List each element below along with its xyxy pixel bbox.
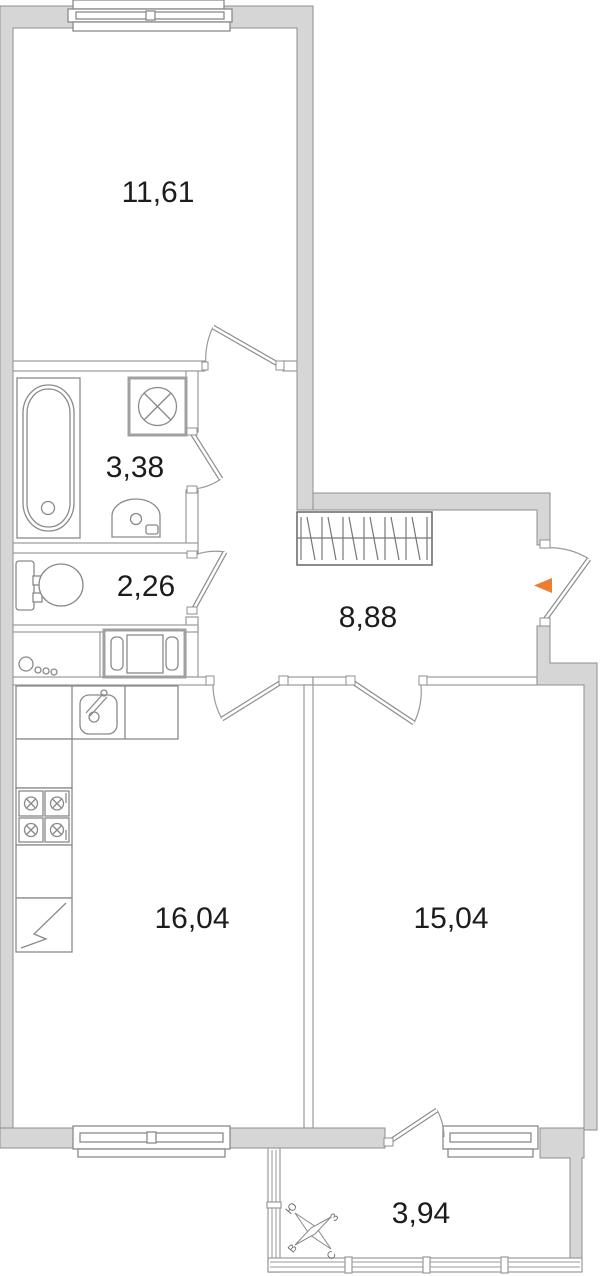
balcony-door xyxy=(384,1110,444,1146)
wall-bathroom-bottom xyxy=(13,543,198,553)
utility-appliance xyxy=(104,630,185,677)
compass-west-label: З xyxy=(328,1211,342,1224)
balcony-glazing-mullion-1 xyxy=(345,1257,352,1273)
room-label-bathroom: 3,38 xyxy=(106,451,164,484)
outer-walls xyxy=(0,6,597,1272)
wall-entrance-lower-right xyxy=(537,626,597,1130)
bathtub xyxy=(17,378,80,538)
room-label-toilet: 2,26 xyxy=(117,570,175,603)
water-heater xyxy=(19,657,57,675)
balcony-glazing-left xyxy=(268,1148,280,1272)
balcony-glazing-mullion-2 xyxy=(423,1257,430,1273)
bedroom-window xyxy=(68,0,232,31)
bathroom-door xyxy=(187,428,221,493)
room-label-hallway: 8,88 xyxy=(339,601,397,634)
floor-plan: Ю З В С 11,61 3,38 2,26 8,88 16,04 15,04… xyxy=(0,0,600,1276)
toilet xyxy=(16,561,83,610)
balcony-glazing-left-mullion xyxy=(267,1202,281,1208)
kitchen-door xyxy=(206,676,288,719)
living-room-door xyxy=(346,676,427,723)
bedroom-door xyxy=(202,327,284,370)
wall-bathroom-right-upper xyxy=(186,371,198,432)
room-label-kitchen: 16,04 xyxy=(154,902,229,935)
entrance-marker-icon xyxy=(534,578,552,593)
wall-livingroom-top-left xyxy=(313,677,347,685)
partition-walls xyxy=(13,361,537,1128)
wall-kitchen-top-stub xyxy=(287,677,313,685)
wall-bedroom-bottom xyxy=(13,361,205,371)
kitchen-window xyxy=(73,1126,230,1157)
bathroom-sink xyxy=(112,499,160,537)
stove xyxy=(16,788,72,845)
room-label-living-room: 15,04 xyxy=(413,902,488,935)
washing-machine xyxy=(129,378,186,435)
fridge xyxy=(16,898,72,952)
floor-plan-canvas: Ю З В С 11,61 3,38 2,26 8,88 16,04 15,04… xyxy=(0,0,600,1276)
compass-rose: Ю З В С xyxy=(284,1201,342,1263)
wall-bedroom-bottom-stub xyxy=(283,361,297,371)
toilet-door xyxy=(187,551,225,614)
room-label-bedroom: 11,61 xyxy=(122,176,195,209)
balcony-window xyxy=(443,1126,538,1157)
wall-balcony-right xyxy=(540,1128,584,1272)
kitchen-cabinet xyxy=(16,845,72,898)
balcony-glazing-mullion-3 xyxy=(501,1257,508,1273)
wardrobe xyxy=(297,512,432,565)
wall-livingroom-top-right xyxy=(425,677,537,685)
wall-kitchen-living-partition xyxy=(304,685,313,1128)
room-label-balcony: 3,94 xyxy=(392,1197,450,1230)
doors xyxy=(187,327,589,1146)
